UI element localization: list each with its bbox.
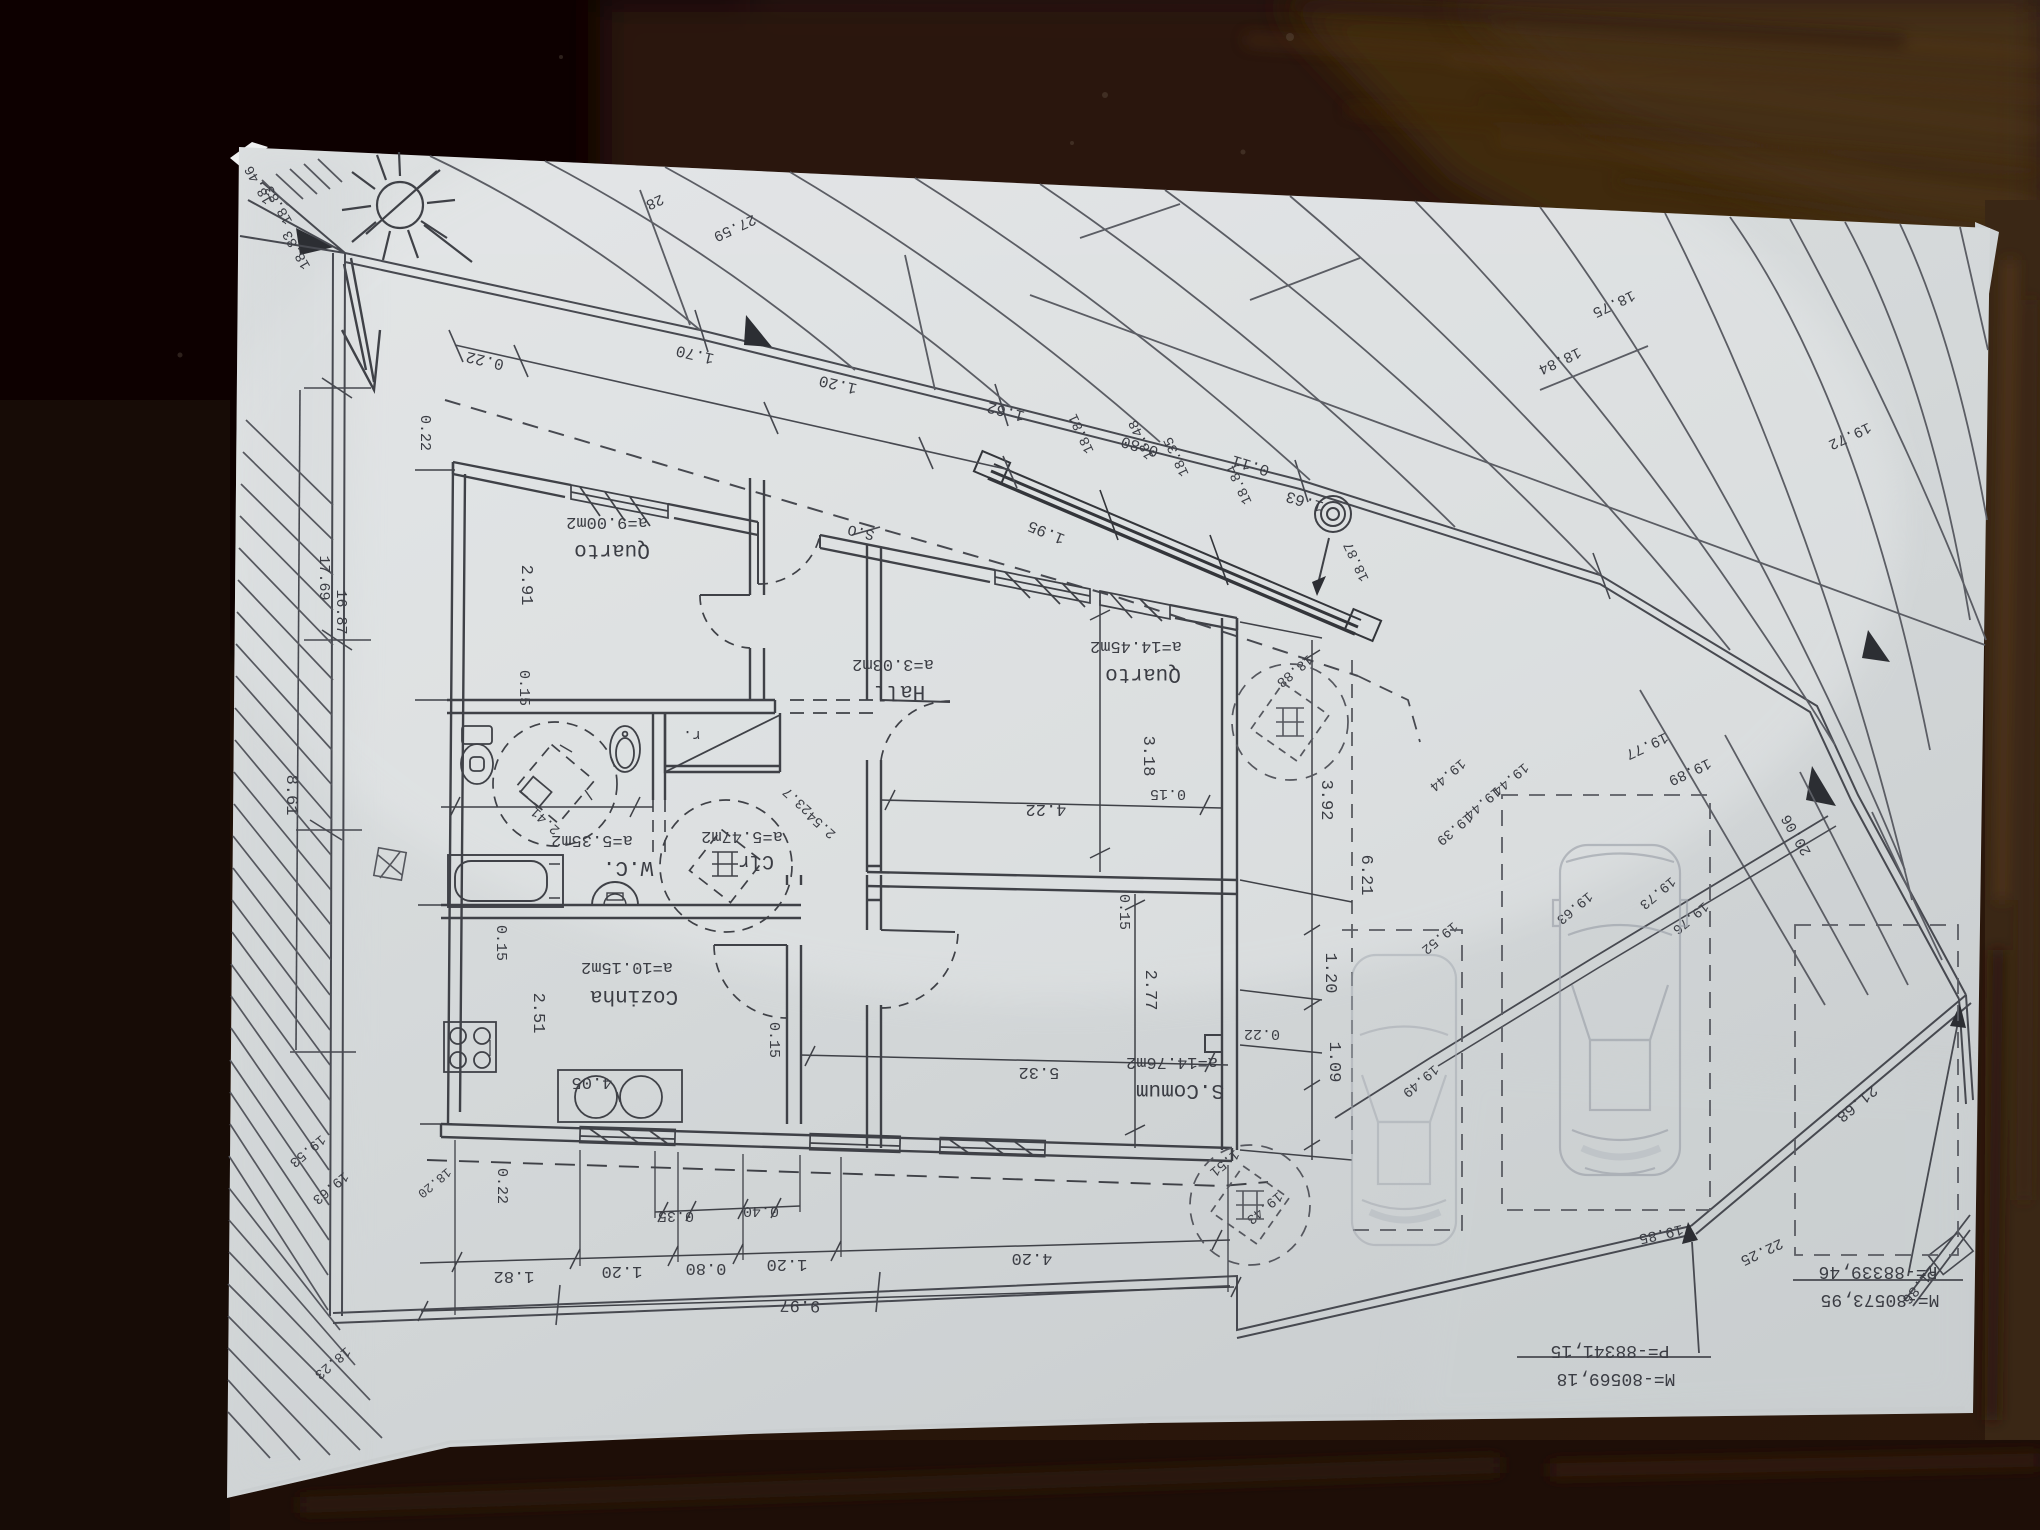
svg-text:1.20: 1.20	[602, 1261, 643, 1280]
svg-text:a=9.00m2: a=9.00m2	[566, 512, 648, 531]
svg-text:1.82: 1.82	[494, 1266, 535, 1285]
svg-text:0.15: 0.15	[492, 925, 509, 961]
svg-text:5.32: 5.32	[1019, 1062, 1060, 1081]
svg-text:2.77: 2.77	[1140, 970, 1159, 1011]
svg-text:Clr: Clr	[738, 849, 774, 872]
svg-text:17.69: 17.69	[315, 555, 332, 600]
svg-text:1.20: 1.20	[767, 1254, 808, 1273]
svg-text:Quarto: Quarto	[574, 538, 650, 561]
svg-text:Cozinha: Cozinha	[590, 984, 678, 1007]
svg-text:3.18: 3.18	[1138, 736, 1157, 777]
svg-text:1.09: 1.09	[1324, 1042, 1343, 1083]
svg-text:r.: r.	[683, 726, 701, 743]
svg-text:0.22: 0.22	[1244, 1025, 1280, 1042]
svg-text:16.87: 16.87	[332, 589, 349, 634]
svg-text:0.15: 0.15	[1150, 785, 1186, 802]
svg-text:0.15: 0.15	[1115, 894, 1132, 930]
svg-text:M=-80573,95: M=-80573,95	[1821, 1289, 1940, 1309]
svg-text:S.Comum: S.Comum	[1136, 1078, 1224, 1101]
svg-text:2.91: 2.91	[516, 565, 535, 606]
svg-text:3.92: 3.92	[1316, 780, 1335, 821]
svg-text:a=5.35m2: a=5.35m2	[551, 830, 633, 849]
svg-text:0.40: 0.40	[743, 1202, 779, 1219]
svg-text:a=14.45m2: a=14.45m2	[1090, 636, 1182, 655]
svg-text:8.61: 8.61	[281, 775, 300, 816]
svg-text:a=5.47m2: a=5.47m2	[701, 826, 783, 845]
svg-text:1.20: 1.20	[1320, 953, 1339, 994]
svg-text:2.51: 2.51	[528, 993, 547, 1034]
svg-text:0.22: 0.22	[493, 1168, 510, 1204]
svg-text:a=14.76m2: a=14.76m2	[1126, 1052, 1218, 1071]
svg-text:a=3.03m2: a=3.03m2	[852, 654, 934, 673]
svg-text:0.22: 0.22	[416, 415, 433, 451]
svg-text:4.20: 4.20	[1012, 1248, 1053, 1267]
svg-text:4.22: 4.22	[1026, 799, 1067, 818]
svg-text:0.35: 0.35	[658, 1207, 694, 1224]
svg-text:Hall: Hall	[875, 679, 925, 702]
svg-text:M=-80569,18: M=-80569,18	[1557, 1368, 1676, 1388]
svg-text:0.15: 0.15	[515, 670, 532, 706]
svg-text:W.C.: W.C.	[603, 855, 653, 878]
svg-text:P=-88341,15: P=-88341,15	[1551, 1340, 1670, 1360]
svg-text:Quarto: Quarto	[1105, 662, 1181, 685]
svg-text:a=10.15m2: a=10.15m2	[581, 957, 673, 976]
svg-text:P=-88339,46: P=-88339,46	[1819, 1261, 1938, 1281]
svg-text:9.97: 9.97	[779, 1295, 820, 1315]
svg-text:0.15: 0.15	[765, 1022, 782, 1058]
svg-text:6.21: 6.21	[1356, 855, 1375, 896]
svg-text:4.05: 4.05	[572, 1072, 613, 1091]
svg-text:0.80: 0.80	[686, 1258, 727, 1277]
